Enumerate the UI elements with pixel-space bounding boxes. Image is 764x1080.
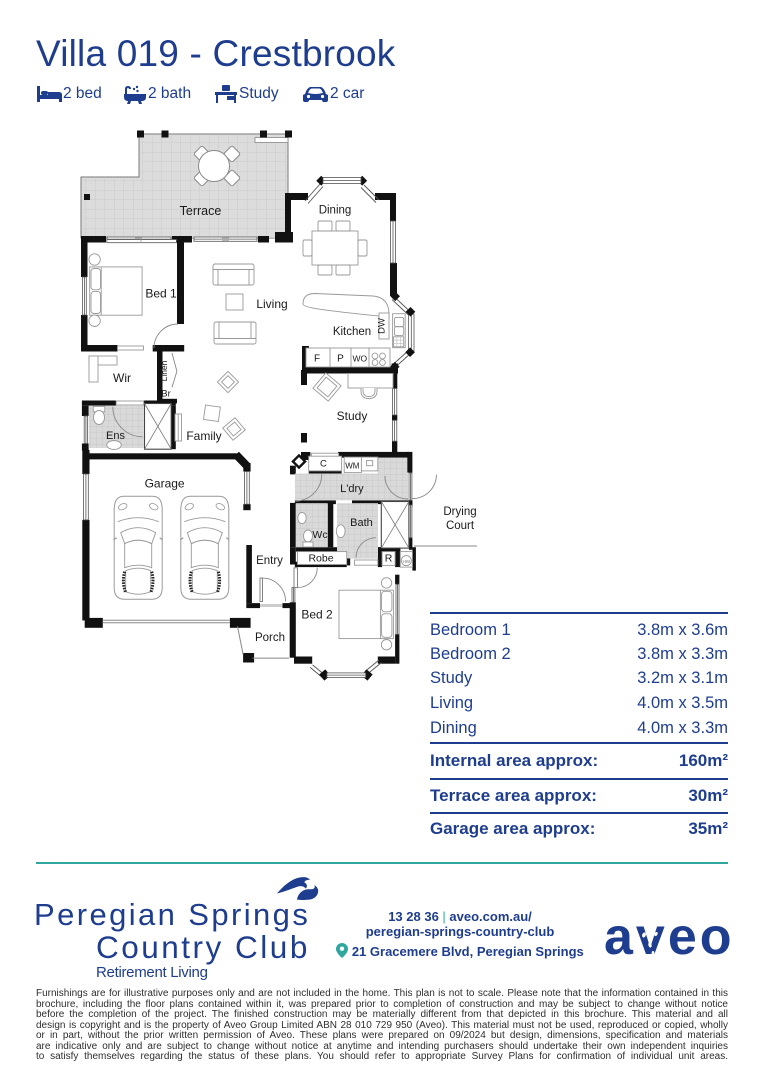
svg-text:WM: WM [345, 462, 360, 471]
svg-text:Study: Study [337, 409, 368, 423]
svg-text:Court: Court [446, 520, 475, 532]
svg-text:Garage: Garage [145, 477, 185, 491]
svg-text:C: C [320, 459, 327, 470]
svg-text:Robe: Robe [308, 553, 333, 565]
svg-text:Terrace: Terrace [180, 204, 222, 218]
svg-text:P: P [337, 354, 344, 365]
svg-text:Ens: Ens [106, 430, 125, 442]
svg-text:R: R [385, 553, 393, 565]
svg-text:HW: HW [402, 559, 410, 564]
svg-text:Wc: Wc [312, 529, 327, 541]
svg-text:Bed 2: Bed 2 [301, 608, 333, 622]
svg-text:Drying: Drying [443, 506, 476, 518]
svg-text:Entry: Entry [256, 555, 283, 567]
svg-text:Dining: Dining [319, 205, 352, 217]
svg-text:Bed 1: Bed 1 [145, 287, 177, 301]
svg-text:Br: Br [161, 389, 171, 400]
svg-text:Porch: Porch [255, 632, 285, 644]
svg-text:Wir: Wir [113, 371, 131, 385]
svg-text:Kitchen: Kitchen [333, 326, 371, 338]
svg-text:Bath: Bath [350, 517, 373, 529]
svg-text:L'dry: L'dry [340, 483, 364, 495]
svg-text:Living: Living [256, 297, 287, 311]
svg-text:F: F [314, 354, 320, 365]
svg-text:Linen: Linen [159, 360, 169, 381]
svg-text:WO: WO [352, 353, 367, 363]
svg-text:Family: Family [186, 429, 221, 443]
svg-text:DW: DW [377, 318, 388, 334]
